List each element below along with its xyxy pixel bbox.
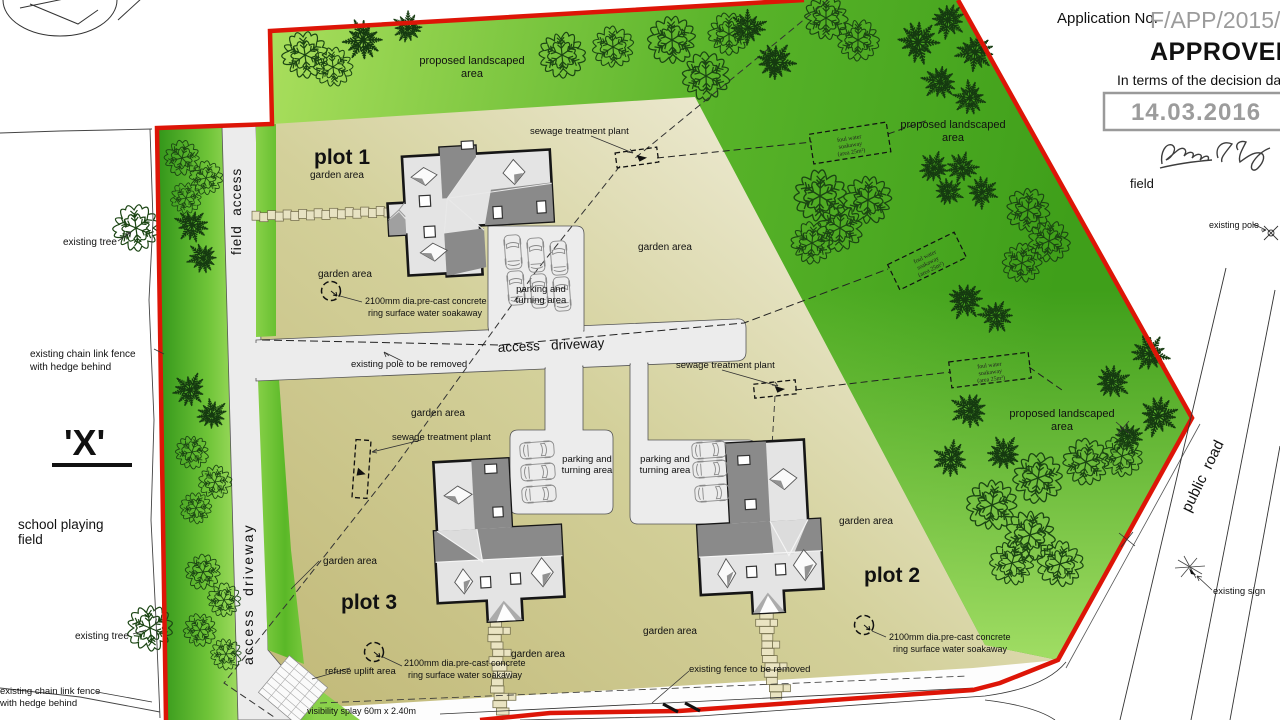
svg-text:sewage treatment plant: sewage treatment plant [676, 360, 775, 371]
svg-text:existing sign: existing sign [1213, 586, 1265, 597]
svg-text:with hedge behind: with hedge behind [0, 698, 77, 709]
svg-text:garden area: garden area [411, 408, 465, 419]
svg-text:parking and: parking and [562, 454, 612, 465]
svg-text:area: area [1051, 421, 1074, 433]
svg-text:existing chain link fence: existing chain link fence [0, 686, 100, 697]
svg-text:area: area [942, 132, 965, 144]
svg-text:turning area: turning area [562, 465, 613, 476]
svg-text:existing pole: existing pole [1209, 220, 1259, 230]
svg-text:turning area: turning area [640, 465, 691, 476]
svg-text:field access: field access [229, 168, 244, 255]
svg-text:proposed landscaped: proposed landscaped [419, 55, 524, 67]
svg-text:2100mm dia.pre-cast concrete: 2100mm dia.pre-cast concrete [404, 658, 526, 668]
svg-text:access driveway: access driveway [240, 523, 256, 665]
svg-text:garden area: garden area [839, 516, 893, 527]
svg-text:garden area: garden area [643, 626, 697, 637]
svg-text:2100mm dia.pre-cast concrete: 2100mm dia.pre-cast concrete [365, 296, 487, 306]
svg-text:parking and: parking and [640, 454, 690, 465]
svg-text:with hedge behind: with hedge behind [29, 362, 111, 373]
svg-text:existing tree: existing tree [75, 631, 129, 642]
svg-text:field: field [1130, 176, 1154, 191]
svg-text:plot 3: plot 3 [341, 591, 397, 614]
svg-text:area: area [461, 68, 484, 80]
svg-text:parking and: parking and [516, 284, 566, 295]
svg-text:existing pole to be removed: existing pole to be removed [351, 359, 467, 370]
svg-text:refuse uplift area: refuse uplift area [325, 666, 396, 677]
svg-text:sewage treatment plant: sewage treatment plant [530, 126, 629, 137]
svg-text:APPROVED: APPROVED [1150, 38, 1280, 66]
svg-text:plot 1: plot 1 [314, 146, 370, 169]
svg-text:turning area: turning area [516, 295, 567, 306]
svg-text:visibility splay 60m x 2.40m: visibility splay 60m x 2.40m [307, 706, 416, 716]
svg-text:existing fence to be removed: existing fence to be removed [689, 664, 810, 675]
svg-text:proposed landscaped: proposed landscaped [900, 119, 1005, 131]
svg-text:'X': 'X' [64, 422, 105, 463]
svg-text:In terms of the decision dat: In terms of the decision dat [1117, 72, 1280, 88]
svg-text:existing chain link fence: existing chain link fence [30, 349, 136, 360]
svg-text:proposed landscaped: proposed landscaped [1009, 408, 1114, 420]
svg-text:field: field [18, 532, 43, 547]
svg-text:Application No.: Application No. [1057, 10, 1158, 27]
svg-text:garden area: garden area [318, 269, 372, 280]
svg-text:plot 2: plot 2 [864, 564, 920, 587]
svg-text:garden area: garden area [638, 242, 692, 253]
svg-text:school playing: school playing [18, 517, 104, 532]
svg-text:F/APP/2015/: F/APP/2015/ [1150, 7, 1280, 33]
svg-text:garden area: garden area [323, 556, 377, 567]
svg-text:sewage treatment plant: sewage treatment plant [392, 432, 491, 443]
svg-text:2100mm dia.pre-cast concrete: 2100mm dia.pre-cast concrete [889, 632, 1011, 642]
svg-text:existing tree: existing tree [63, 237, 117, 248]
svg-text:ring surface water soakaway: ring surface water soakaway [893, 644, 1008, 654]
svg-text:ring surface water soakaway: ring surface water soakaway [368, 308, 483, 318]
svg-text:ring surface water soakaway: ring surface water soakaway [408, 670, 523, 680]
svg-text:garden area: garden area [310, 170, 364, 181]
svg-text:14.03.2016: 14.03.2016 [1131, 99, 1261, 126]
